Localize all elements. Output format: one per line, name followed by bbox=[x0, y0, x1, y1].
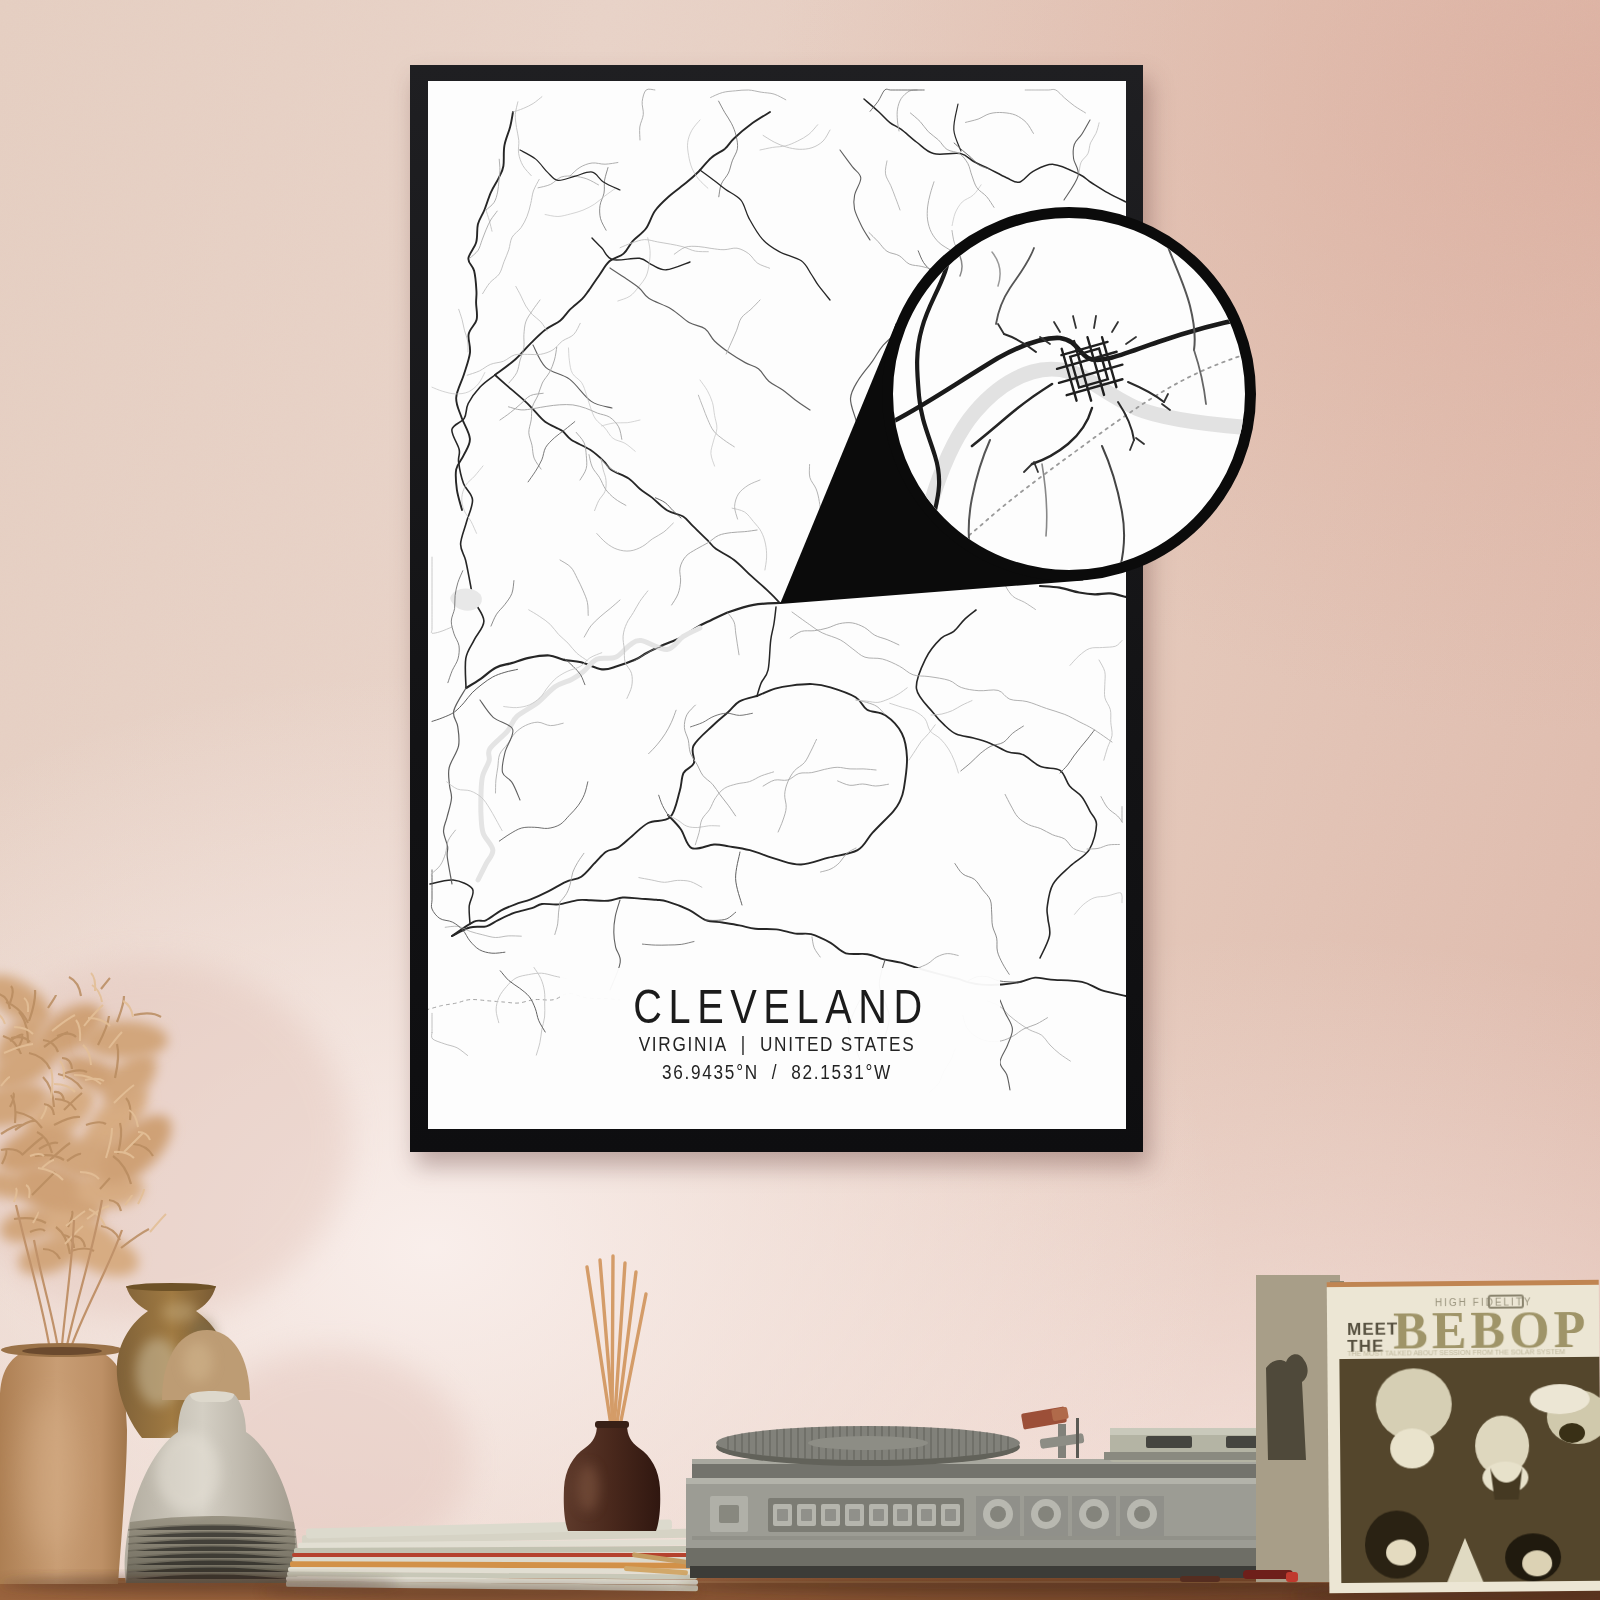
svg-text:HIGH FIDELITY: HIGH FIDELITY bbox=[1435, 1296, 1533, 1308]
